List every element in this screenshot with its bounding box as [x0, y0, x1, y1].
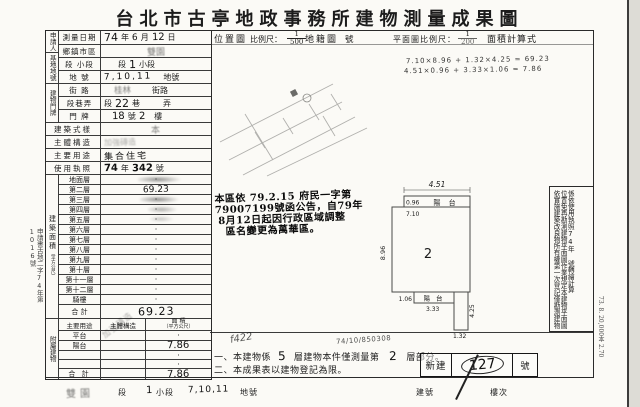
stamp-box-number: 127 — [460, 354, 504, 376]
ink-smudge — [148, 206, 178, 213]
street-value: 桂林 街路 — [101, 84, 211, 96]
annex-area-header: 面 積 （平方公尺） — [146, 319, 211, 330]
section-value: 段 1 小段 — [101, 58, 211, 70]
section-label: 段 小段 — [59, 58, 101, 70]
floor-label: 第十層 — [59, 265, 101, 274]
style-handwriting: 本 — [151, 123, 160, 135]
parcel-value: 7,10,11 地號 — [101, 71, 211, 83]
door-floor: 2 — [139, 110, 146, 121]
floor-row: 第九層 · — [59, 255, 211, 265]
date-month-suffix: 月 — [141, 32, 149, 43]
floor-label: 第五層 — [59, 215, 101, 224]
annex-row-label — [59, 351, 101, 359]
floor-label: 第九層 — [59, 255, 101, 264]
footer-parcel-value: 7,10,11 — [188, 384, 230, 395]
structure-value: 加強磚造 — [101, 136, 211, 148]
note1-pre: 一、本建物係 — [214, 353, 271, 363]
floor-row: 第十一層 · — [59, 275, 211, 285]
sidebar-note-col3-pre: 係依使用執照 — [566, 190, 574, 230]
floor-row: 第十層 · — [59, 265, 211, 275]
footer-parcel-label: 地號 — [240, 387, 258, 398]
lane-mid: 巷 — [132, 98, 140, 109]
building-number-stamp-box: 新建 127 號 — [420, 353, 538, 377]
floor-row: 地面層 · — [59, 175, 211, 185]
receipt-office-code: 古地二字 — [35, 248, 43, 274]
parcel-label: 地 號 — [59, 71, 101, 83]
area-total-label: 合 計 — [59, 305, 101, 318]
annex-row-structure — [101, 341, 146, 350]
floor-value: · — [101, 245, 211, 254]
floor-label: 第六層 — [59, 225, 101, 234]
floor-value: · — [101, 225, 211, 234]
annex-usage-header: 主要用途 — [59, 319, 101, 330]
plan-balcony-top-label: 陽 台 — [433, 198, 458, 207]
street-name: 桂林 — [114, 84, 131, 96]
district-value: 雙園 — [101, 45, 211, 57]
plan-dim-ext-height: 4.25 — [469, 304, 476, 318]
receipt-year: 74 — [35, 273, 43, 289]
door-value: 18 號 2 樓 — [101, 110, 211, 122]
annex-header-row: 主要用途 主體構造 面 積 （平方公尺） — [59, 319, 211, 331]
floor-row: 第六層 · — [59, 225, 211, 235]
stamp-box-left: 新建 — [421, 354, 452, 376]
site-group-label: 基地地號 — [46, 53, 59, 84]
area-group-sub: （平方公尺） — [50, 251, 55, 278]
scan-edge-margin — [629, 0, 640, 407]
floor-row: 第三層 · — [59, 195, 211, 205]
door-suf: 樓 — [154, 111, 162, 122]
footer-district-value: 雙園 — [66, 385, 94, 401]
scanned-survey-document: 台北市古亭地政事務所建物測量成果圖 申請人 基地地號 建物門牌 建築面積 （平方… — [0, 0, 640, 407]
annex-area-header-sub: （平方公尺） — [163, 325, 193, 330]
annex-row-value: 7.86 — [146, 341, 211, 350]
floor-label: 第三層 — [59, 195, 101, 204]
date-year-suffix: 年 — [121, 32, 129, 43]
door-label: 門 牌 — [59, 110, 101, 122]
door-row: 門 牌 18 號 2 樓 — [59, 110, 211, 123]
print-info: 73. 8. 20,000本 2.70 — [596, 296, 605, 396]
structure-handwriting: 加強磚造 — [104, 136, 136, 148]
street-label: 街 路 — [59, 84, 101, 96]
floor-row: 第十二層 · — [59, 285, 211, 295]
sidebar-note-col-3: 係依使用執照74年號轉繪計算 — [566, 190, 573, 330]
license-number-suffix: 號 — [156, 163, 164, 174]
district-handwriting: 雙園 — [147, 45, 165, 57]
area-total-value: 69.23 — [101, 305, 211, 318]
structure-row: 主體構造 加強磚造 — [46, 136, 211, 149]
annex-row: · — [59, 351, 211, 360]
style-row: 建築式樣 本 — [46, 123, 211, 136]
plan-dim-bottom-width: 3.33 — [426, 306, 440, 313]
floor-label: 第十一層 — [59, 275, 101, 284]
area-formula-label: 面積計算式 — [487, 32, 537, 45]
annex-row-structure — [101, 351, 146, 359]
plan-dim-top-depth: 0.96 — [406, 200, 420, 207]
annex-row-value: · — [146, 351, 211, 359]
street-row: 街 路 桂林 街路 — [59, 84, 211, 97]
plan-balcony-bottom-label: 陽 台 — [423, 294, 444, 303]
annex-row: 陽台 7.86 — [59, 341, 211, 351]
parcel-numbers: 7,10,11 — [104, 71, 153, 82]
cadastral-map-label: 地籍圖 — [305, 32, 338, 45]
floor-area-handwriting: 69.23 — [143, 185, 169, 194]
ink-smudge — [140, 196, 180, 203]
receipt-number: 1016 — [28, 228, 36, 260]
plan-scale-label: 平面圖比例尺： — [393, 34, 456, 45]
license-value: 74 年 342 號 — [101, 162, 211, 174]
plan-room-label: 2 — [424, 247, 432, 262]
sidebar-note-box: 依實施建築改良物所有權第一次登記僅勘測建物 位置免再勘測建物平面圖作業規定本建物… — [549, 186, 594, 332]
style-value: 本 — [101, 123, 211, 135]
area-group-main: 建築面積 — [49, 215, 56, 251]
floor-label: 第八層 — [59, 245, 101, 254]
parcel-suffix: 地號 — [163, 72, 179, 83]
area-total-handwriting: 69.23 — [138, 305, 175, 318]
floor-row: 第二層 69.23 — [59, 185, 211, 195]
lane-suf: 弄 — [163, 98, 171, 109]
sidebar-note-col-2: 位置免再勘測建物平面圖作業規定本建物平面圖 — [559, 190, 566, 330]
date-month: 6 — [132, 32, 138, 42]
floor-label: 第七層 — [59, 235, 101, 244]
area-total-row: 合 計 69.23 — [59, 305, 211, 319]
lane-label: 段巷弄 — [59, 97, 101, 109]
scale-fraction: 1 500 — [287, 31, 306, 47]
sidebar-note-col3-yearlabel: 年 — [566, 246, 574, 253]
date-day-suffix: 日 — [167, 32, 175, 43]
license-year-suffix: 年 — [121, 163, 129, 174]
footer-floor-label: 樓次 — [490, 387, 508, 398]
scale-label: 比例尺： — [250, 34, 282, 45]
usage-handwriting: 集合住宅 — [104, 149, 148, 161]
section-suf: 小段 — [139, 59, 155, 70]
area-group-label: 建築面積 （平方公尺） — [46, 175, 59, 319]
license-row: 使用執照 74 年 342 號 — [46, 162, 211, 175]
note-2: 二、本成果表以建物登記為限。 — [214, 363, 347, 376]
note1-floor-count: 5 — [274, 349, 291, 363]
plan-scale-numerator: 1 — [465, 31, 469, 38]
plan-dim-ext-width: 1.32 — [453, 333, 467, 340]
plan-dim-bottom-depth: 1.06 — [399, 296, 413, 303]
annex-total-row: 合 計 7.86 — [59, 369, 211, 379]
section-row: 段 小段 段 1 小段 — [59, 58, 211, 71]
annex-row-label: 平台 — [59, 331, 101, 340]
survey-date-label: 測量日期 — [59, 31, 101, 44]
receipt-number-suffix: 號 — [28, 260, 36, 267]
license-number: 342 — [132, 162, 153, 174]
lane-value: 段 22 巷 弄 — [101, 97, 211, 109]
lane-number: 22 — [115, 97, 129, 109]
sidebar-note-col3-suffix: 號轉繪計算 — [566, 260, 574, 293]
floor-row: 第四層 · — [59, 205, 211, 215]
floor-label: 騎樓 — [59, 295, 101, 304]
date-year: 74 — [104, 31, 118, 44]
floor-row: 第七層 · — [59, 235, 211, 245]
location-sketch — [215, 72, 380, 180]
location-map-label: 位置圖 — [214, 32, 247, 45]
district-row: 鄉鎮市區 雙園 — [59, 45, 211, 58]
survey-date-value: 74 年 6 月 12 日 — [101, 31, 211, 44]
floor-row: 第五層 · — [59, 215, 211, 225]
plan-dim-main-height: 8.96 — [379, 246, 387, 260]
floor-row: 騎樓 · — [59, 295, 211, 305]
receipt-yearno-label: 年第 — [35, 290, 43, 303]
annex-row-structure — [101, 360, 146, 368]
plan-scale-fraction: 1 200 — [458, 31, 477, 47]
license-label: 使用執照 — [46, 162, 101, 174]
annex-total-value: 7.86 — [146, 369, 211, 379]
floor-value: · — [101, 285, 211, 294]
floor-plan: 4.51 0.96 陽 台 7.10 8.96 2 1.06 陽 台 3.33 … — [368, 178, 500, 343]
sidebar-note-col3-year: 74 — [566, 230, 573, 246]
section-pre: 段 — [118, 59, 126, 70]
lane-row: 段巷弄 段 22 巷 弄 — [59, 97, 211, 110]
scale-numerator: 1 — [294, 31, 298, 38]
floor-value: 69.23 — [101, 185, 211, 194]
floor-value: · — [101, 235, 211, 244]
usage-row: 主要用途 集合住宅 — [46, 149, 211, 162]
note1-measured-floor: 2 — [383, 349, 404, 364]
plan-dim-top-width: 4.51 — [429, 180, 446, 189]
survey-date-row: 測量日期 74 年 6 月 12 日 — [59, 31, 211, 45]
floor-value: · — [101, 265, 211, 274]
receipt-doc-label: 申請書 — [35, 228, 43, 248]
footer-subseg-label: 小段 — [156, 387, 174, 398]
lane-pre: 段 — [104, 98, 112, 109]
plan-dim-main-width: 7.10 — [406, 211, 420, 218]
structure-label: 主體構造 — [46, 136, 101, 148]
annex-row-label: 陽台 — [59, 341, 101, 350]
footer-building-no-label: 建號 — [416, 387, 434, 398]
ink-smudge — [138, 176, 182, 183]
style-label: 建築式樣 — [46, 123, 101, 135]
annex-row-label — [59, 360, 101, 368]
stamp-box-right: 號 — [512, 354, 537, 376]
floor-value: · — [101, 255, 211, 264]
floor-value: · — [101, 295, 211, 304]
street-suffix: 街路 — [152, 85, 168, 96]
scale-denominator: 500 — [287, 38, 306, 46]
page-title: 台北市古亭地政事務所建物測量成果圖 — [45, 5, 594, 31]
floor-label: 地面層 — [59, 175, 101, 184]
floor-row: 第八層 · — [59, 245, 211, 255]
annex-total-label: 合 計 — [59, 369, 101, 379]
floor-label: 第二層 — [59, 185, 101, 194]
stamp-box-number-cell: 127 — [452, 354, 512, 376]
license-year: 74 — [104, 162, 118, 173]
ink-smudge — [150, 216, 174, 222]
usage-label: 主要用途 — [46, 149, 101, 161]
floor-label: 第十二層 — [59, 285, 101, 294]
plan-scale-denominator: 200 — [458, 38, 477, 46]
note-1: 一、本建物係 5 層建物本件僅測量第 2 層部分。 — [214, 349, 444, 363]
address-group-label: 建物門牌 — [46, 84, 59, 123]
form-table: 申請人 基地地號 建物門牌 建築面積 （平方公尺） 附屬建物 測量日期 74 年… — [45, 30, 212, 380]
sheet-no-label: 號 — [345, 33, 354, 45]
annex-row-value: · — [146, 331, 211, 340]
annex-total-structure — [101, 369, 146, 379]
applicant-label: 申請人 — [46, 31, 59, 53]
date-day: 12 — [152, 32, 165, 43]
annex-total-handwriting: 7.86 — [167, 368, 190, 380]
annex-row-value: · — [146, 360, 211, 368]
footer-seg-label: 段 — [118, 387, 127, 398]
usage-value: 集合住宅 — [101, 149, 211, 161]
annex-group-label: 附屬建物 — [46, 319, 59, 379]
sidebar-note-col-1: 依實施建築改良物所有權第一次登記僅勘測建物 — [552, 190, 559, 330]
parcel-row: 地 號 7,10,11 地號 — [59, 71, 211, 84]
footer-seg-value: 1 — [146, 385, 153, 396]
door-number: 18 — [112, 110, 125, 121]
floor-value: · — [101, 275, 211, 284]
note1-mid: 層建物本件僅測量第 — [294, 353, 380, 363]
district-label: 鄉鎮市區 — [59, 45, 101, 57]
door-mid: 號 — [128, 111, 136, 122]
section-number: 1 — [129, 58, 136, 70]
margin-receipt-stamp: 申請書古地二字74年第1016號 — [28, 228, 42, 330]
annex-row: · — [59, 360, 211, 369]
floor-label: 第四層 — [59, 205, 101, 214]
